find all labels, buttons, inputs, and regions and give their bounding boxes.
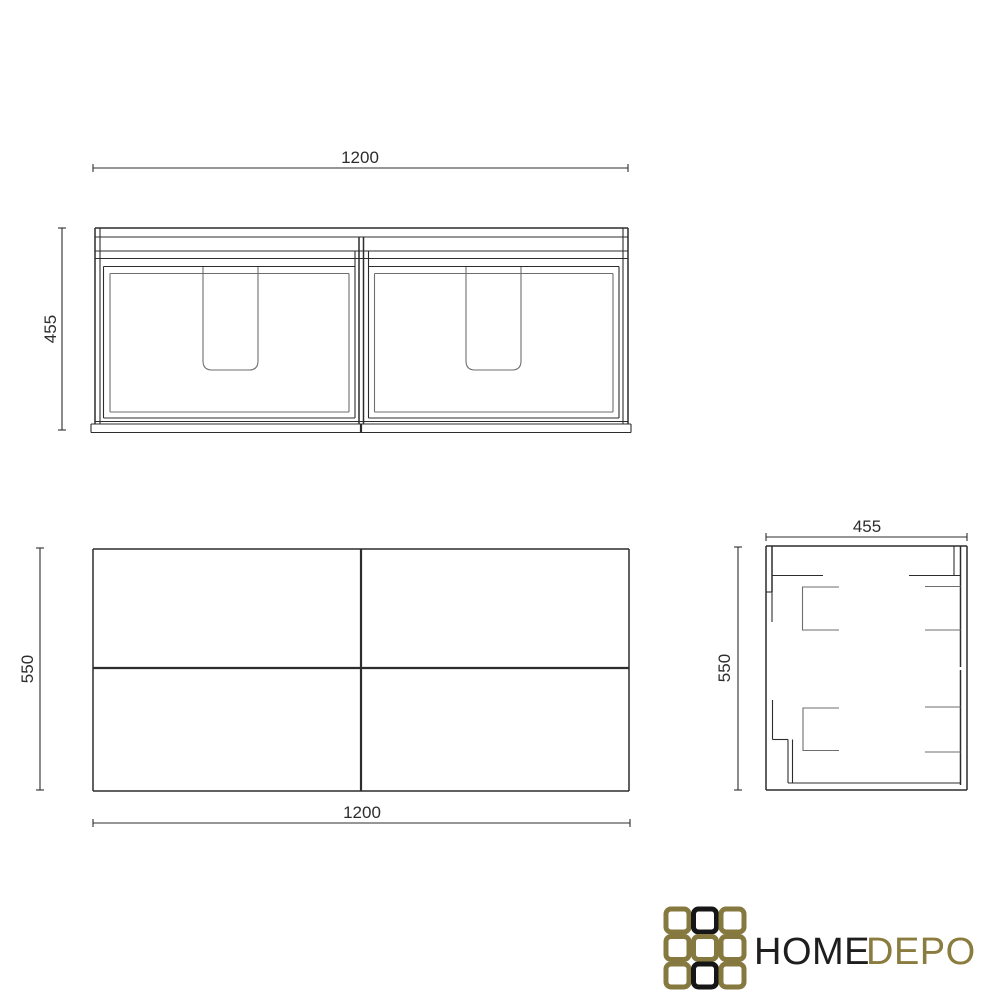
logo-grid-icon: [666, 909, 744, 987]
runner-lower-left: [803, 708, 839, 751]
drawer-handle-cutout: [203, 267, 258, 370]
brand-logo: HOME DEPO: [666, 909, 976, 987]
side-drawer-runners: [803, 587, 961, 753]
side-width-dimension: 455: [766, 517, 967, 541]
logo-text-home: HOME: [754, 931, 870, 973]
side-view: 455 550: [715, 517, 967, 790]
technical-drawing-canvas: 1200 455: [0, 0, 1000, 1000]
logo-text-depo: DEPO: [866, 931, 976, 973]
side-width-label: 455: [853, 517, 881, 536]
front-bottom-rail: [91, 424, 631, 433]
drawer-handle-cutout: [466, 267, 521, 370]
side-internal-panels: [766, 546, 961, 785]
front-height-dimension: 455: [41, 228, 66, 430]
side-height-dimension: 550: [715, 547, 742, 790]
front-view: 1200 455: [41, 148, 631, 433]
front-right-drawer: [369, 251, 620, 418]
runner-upper-left: [803, 587, 840, 630]
plan-depth-dimension: 550: [18, 548, 44, 790]
front-center-divider: [359, 237, 364, 424]
front-width-dimension: 1200: [93, 148, 628, 172]
plan-outline: [93, 549, 629, 791]
plan-view: 550 1200: [18, 548, 630, 827]
side-outline: [766, 546, 967, 790]
front-cabinet-body: [95, 228, 628, 424]
front-left-drawer: [104, 251, 356, 418]
plan-depth-label: 550: [18, 655, 37, 683]
front-height-label: 455: [41, 315, 60, 343]
front-width-label: 1200: [341, 148, 379, 167]
side-height-label: 550: [715, 654, 734, 682]
plan-width-dimension: 1200: [93, 803, 630, 827]
plan-width-label: 1200: [343, 803, 381, 822]
